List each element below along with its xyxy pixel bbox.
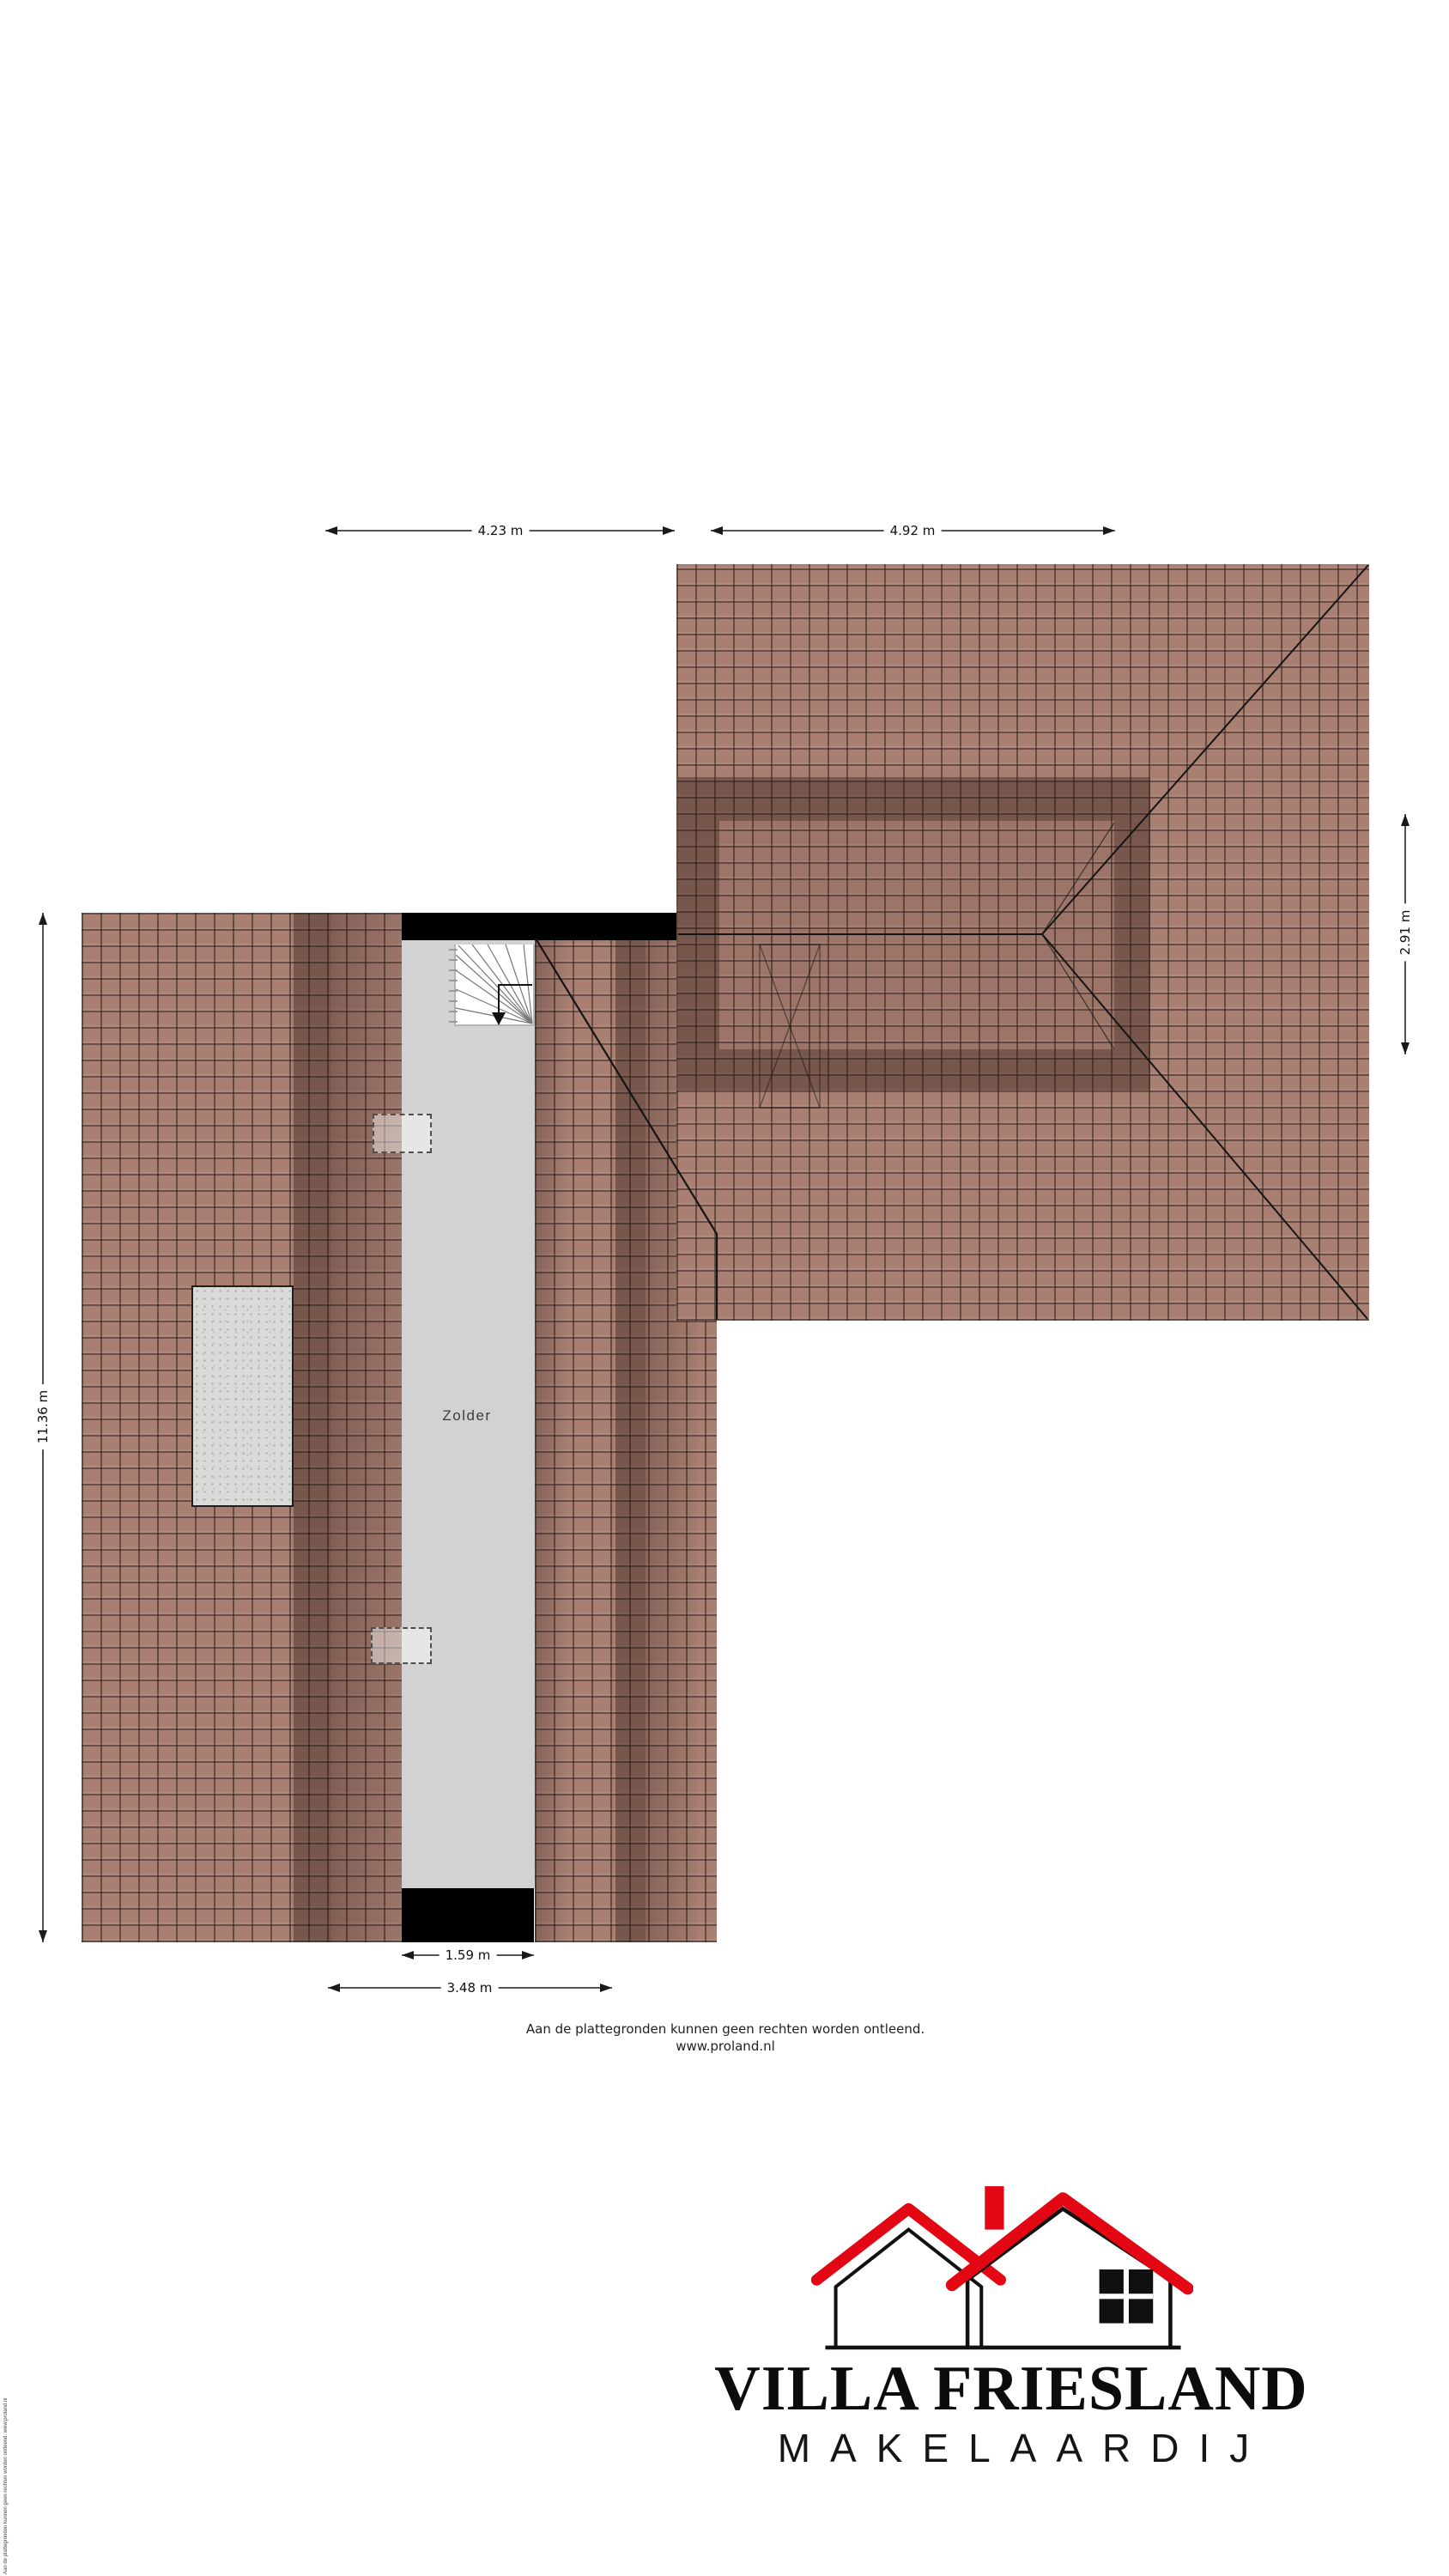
dimension-bottom-inner: 1.59 m — [440, 1947, 497, 1963]
room-label-zolder: Zolder — [442, 1407, 491, 1425]
staircase — [454, 945, 535, 1026]
wall-bottom — [402, 1888, 534, 1942]
footer-disclaimer: Aan de plattegronden kunnen geen rechten… — [526, 2021, 925, 2037]
skylight-dashed-lower — [371, 1627, 432, 1664]
dimension-top-right: 4.92 m — [884, 523, 942, 538]
dimension-left: 11.36 m — [35, 1384, 51, 1449]
side-note-vertical: Aan de plattegronden kunnen geen rechten… — [3, 2398, 9, 2574]
right-wing-roof — [676, 564, 1369, 1321]
chimney-icon — [985, 2186, 1003, 2230]
logo-house-icons — [816, 2186, 1187, 2348]
dimension-top-left: 4.23 m — [472, 523, 530, 538]
dimension-right: 2.91 m — [1397, 904, 1413, 962]
footer-website: www.proland.nl — [676, 2038, 775, 2054]
logo-subtitle: MAKELAARDIJ — [778, 2425, 1270, 2471]
wall-top — [402, 913, 676, 940]
floorplan-canvas: 4.23 m 4.92 m 11.36 m 2.91 m 1.59 m 3.48… — [0, 0, 1449, 2576]
dormer-block — [191, 1285, 294, 1507]
logo-title: VILLA FRIESLAND — [714, 2353, 1307, 2426]
skylight-dashed-upper — [373, 1114, 432, 1153]
window-icon — [1100, 2269, 1154, 2324]
villa-friesland-logo-icon — [811, 2181, 1193, 2354]
dimension-bottom-outer: 3.48 m — [441, 1980, 499, 1996]
